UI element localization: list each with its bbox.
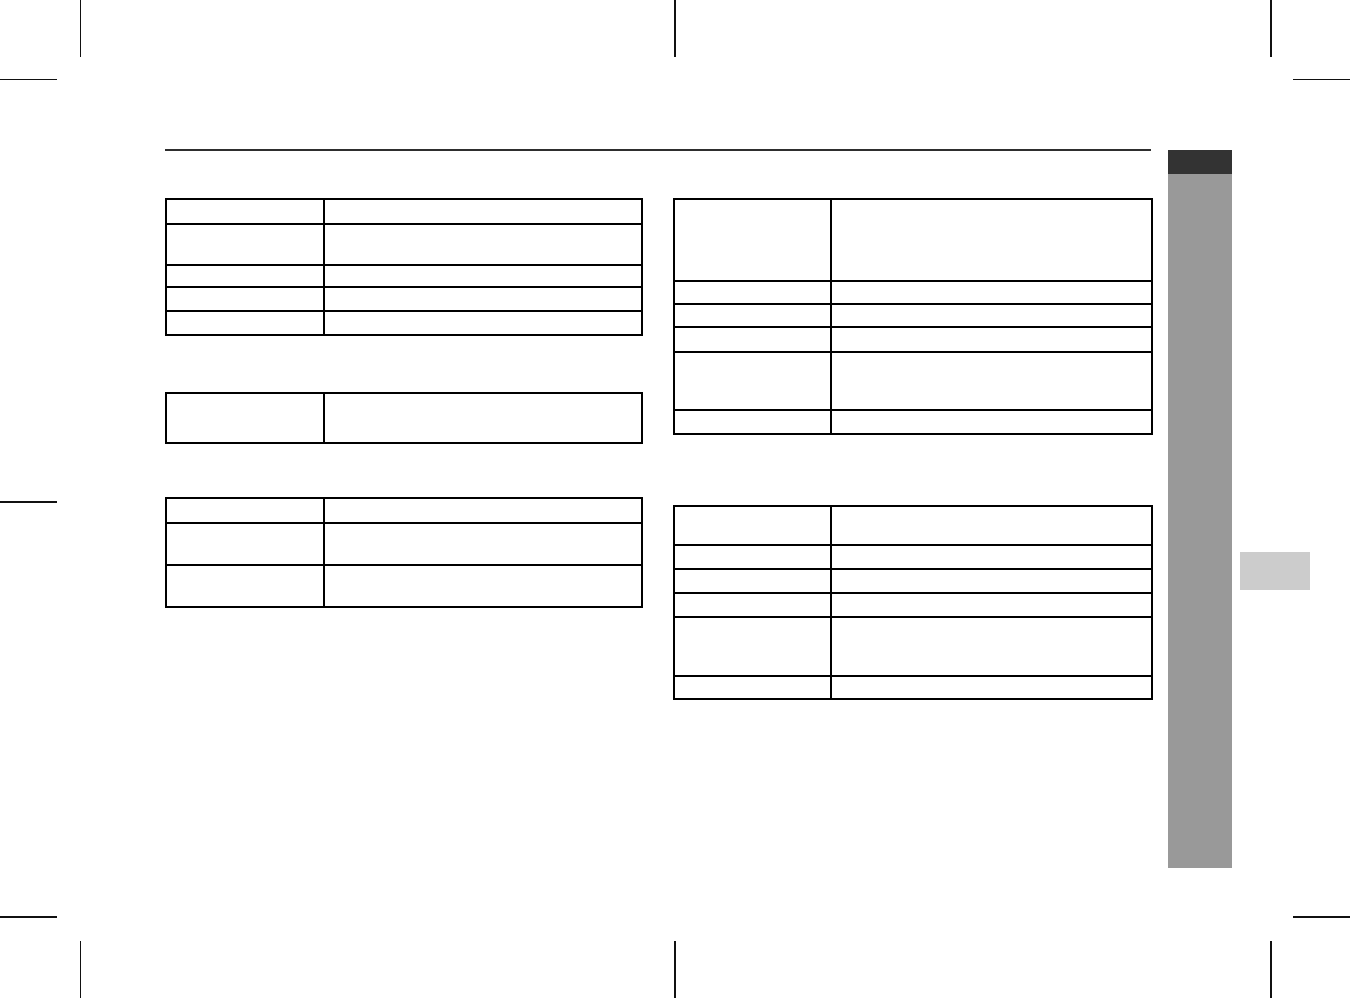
table-row (166, 224, 642, 265)
label-cell (166, 498, 324, 523)
label-cell (674, 410, 831, 434)
table-row (674, 506, 1152, 545)
crop-mark-middle-left-horizontal (0, 501, 57, 503)
value-cell (324, 565, 642, 607)
side-tab-marker (1240, 552, 1310, 590)
label-cell (674, 676, 831, 699)
value-cell (324, 311, 642, 335)
value-cell (324, 287, 642, 311)
spec-table-left-top (165, 198, 643, 336)
table-row (674, 199, 1152, 281)
header-rule (165, 149, 1151, 151)
table-row (674, 545, 1152, 569)
label-cell (166, 393, 324, 443)
table-row (674, 304, 1152, 327)
spec-table-left-middle (165, 392, 643, 444)
value-cell (831, 506, 1152, 545)
table-row (166, 523, 642, 565)
label-cell (674, 199, 831, 281)
table-row (674, 617, 1152, 676)
spec-table (165, 497, 643, 608)
value-cell (324, 393, 642, 443)
value-cell (324, 199, 642, 224)
label-cell (674, 545, 831, 569)
table-row (166, 565, 642, 607)
value-cell (831, 569, 1152, 593)
crop-mark-bottom-right-horizontal (1293, 916, 1350, 918)
label-cell (166, 287, 324, 311)
label-cell (166, 565, 324, 607)
document-page (0, 0, 1350, 998)
crop-mark-bottom-center-vertical (674, 941, 676, 998)
label-cell (166, 199, 324, 224)
chapter-sidebar-bar (1168, 174, 1232, 868)
value-cell (831, 199, 1152, 281)
table-row (674, 569, 1152, 593)
table-row (674, 410, 1152, 434)
spec-table (673, 505, 1153, 700)
crop-mark-top-right-vertical (1270, 0, 1272, 57)
label-cell (674, 327, 831, 352)
label-cell (674, 617, 831, 676)
table-row (674, 593, 1152, 617)
label-cell (674, 352, 831, 410)
spec-table (165, 198, 643, 336)
value-cell (324, 523, 642, 565)
value-cell (831, 617, 1152, 676)
crop-mark-top-right-horizontal (1293, 79, 1350, 81)
label-cell (166, 311, 324, 335)
table-row (166, 199, 642, 224)
spec-table (165, 392, 643, 444)
crop-mark-bottom-left-vertical (80, 941, 82, 998)
value-cell (324, 265, 642, 287)
value-cell (831, 593, 1152, 617)
spec-table (673, 198, 1153, 435)
spec-table-right-top (673, 198, 1153, 435)
label-cell (674, 304, 831, 327)
value-cell (831, 281, 1152, 304)
crop-mark-top-center-vertical (674, 0, 676, 57)
crop-mark-top-left-vertical (80, 0, 82, 57)
table-row (674, 352, 1152, 410)
crop-mark-top-left-horizontal (0, 79, 57, 81)
value-cell (831, 352, 1152, 410)
value-cell (831, 327, 1152, 352)
spec-table-left-bottom (165, 497, 643, 608)
table-row (166, 311, 642, 335)
value-cell (831, 676, 1152, 699)
label-cell (166, 224, 324, 265)
label-cell (674, 281, 831, 304)
crop-mark-bottom-left-horizontal (0, 916, 57, 918)
label-cell (166, 523, 324, 565)
table-row (674, 676, 1152, 699)
table-row (166, 287, 642, 311)
value-cell (324, 224, 642, 265)
label-cell (166, 265, 324, 287)
value-cell (831, 545, 1152, 569)
chapter-tab (1168, 150, 1232, 174)
value-cell (324, 498, 642, 523)
value-cell (831, 304, 1152, 327)
label-cell (674, 593, 831, 617)
table-row (166, 393, 642, 443)
label-cell (674, 506, 831, 545)
label-cell (674, 569, 831, 593)
value-cell (831, 410, 1152, 434)
table-row (166, 498, 642, 523)
crop-mark-bottom-right-vertical (1270, 941, 1272, 998)
table-row (674, 281, 1152, 304)
table-row (166, 265, 642, 287)
table-row (674, 327, 1152, 352)
spec-table-right-bottom (673, 505, 1153, 700)
